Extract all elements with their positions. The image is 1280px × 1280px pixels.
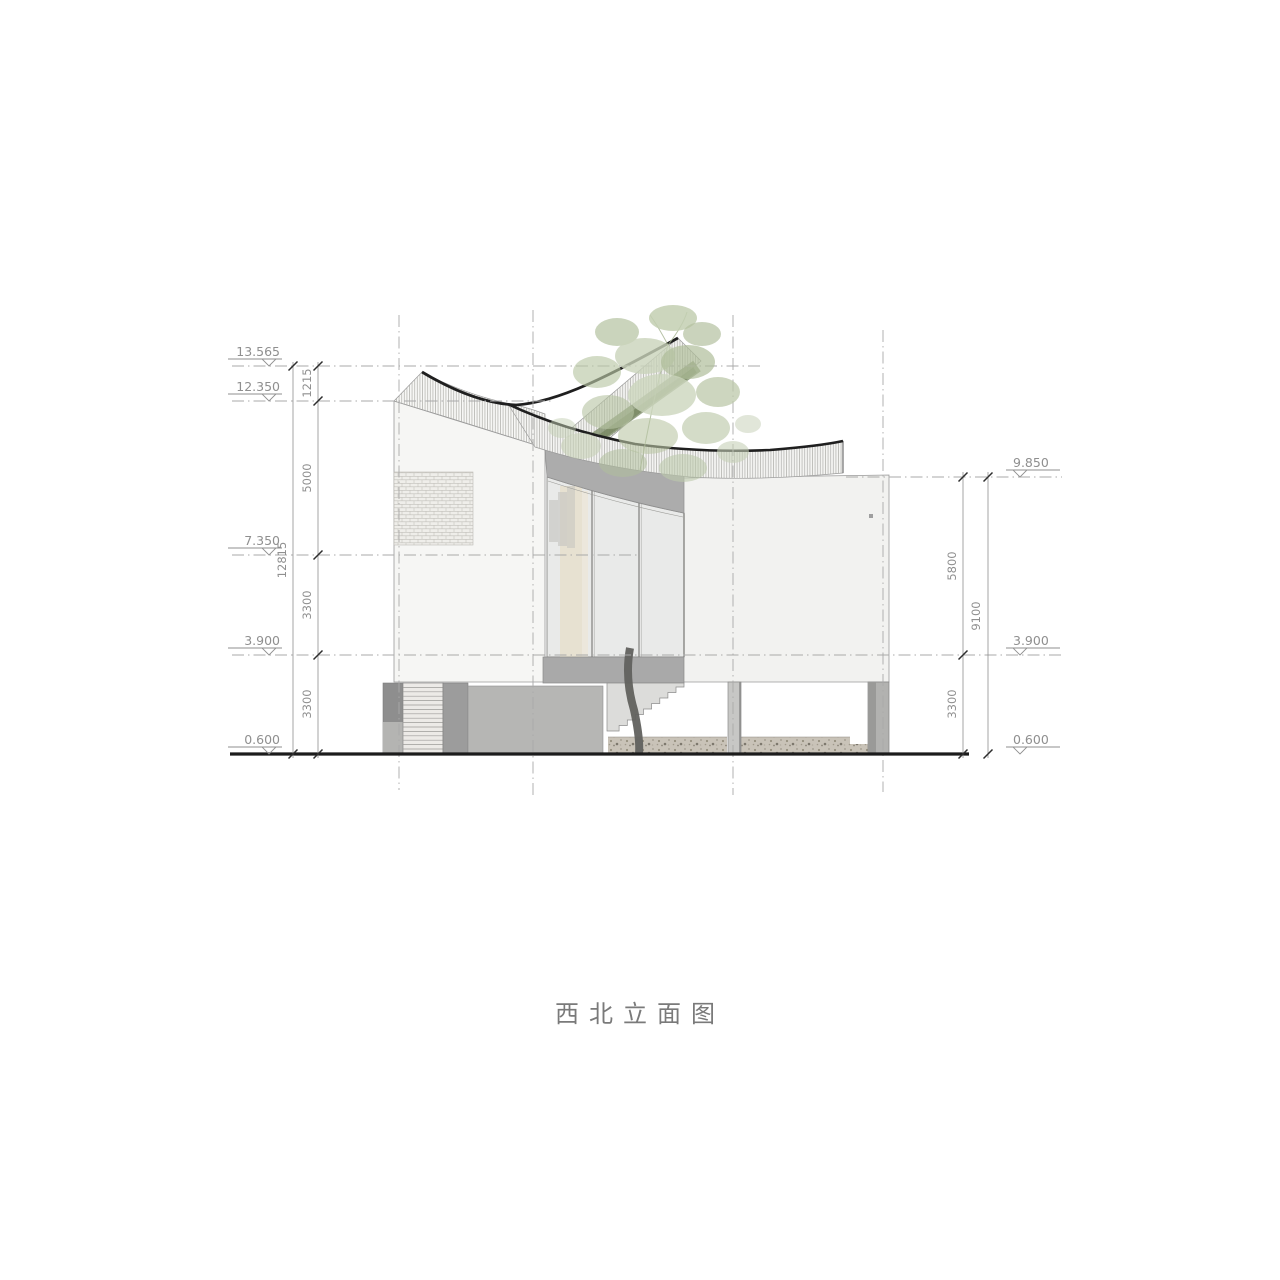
level-value: 12.350 — [236, 379, 280, 394]
level-marker-left: 0.600 — [228, 732, 282, 754]
gravel-strip — [741, 737, 850, 754]
louver-door — [403, 683, 443, 754]
right-wall-volume — [683, 475, 889, 682]
level-marker-left: 12.350 — [228, 379, 282, 401]
level-triangle — [1013, 747, 1027, 754]
level-triangle — [262, 648, 276, 655]
level-value: 0.600 — [244, 732, 280, 747]
ground-wall-slab — [468, 686, 603, 754]
level-value: 0.600 — [1013, 732, 1049, 747]
level-marker-left: 3.900 — [228, 633, 282, 655]
pier-base — [383, 722, 403, 754]
northwest-elevation-svg: 1215 5000 3300 3300 12815 5800 3300 9100… — [0, 0, 1280, 1280]
pier-shadow — [868, 682, 876, 754]
level-triangle — [262, 394, 276, 401]
level-triangle — [262, 359, 276, 366]
level-value: 9.850 — [1013, 455, 1049, 470]
level-value: 13.565 — [236, 344, 280, 359]
interior-silhouette — [558, 492, 567, 546]
staircase — [607, 683, 684, 731]
floor-slab-band — [543, 657, 684, 683]
level-value: 3.900 — [244, 633, 280, 648]
gravel-strip — [608, 737, 727, 754]
brick-texture-patch — [394, 472, 473, 545]
dim-text: 5000 — [300, 463, 314, 492]
drawing-title: 西北立面图 — [0, 994, 1280, 1029]
level-marker-left: 13.565 — [228, 344, 282, 366]
level-marker-right: 9.850 — [1006, 455, 1060, 477]
level-triangle — [262, 548, 276, 555]
elevation-drawing-sheet: 1215 5000 3300 3300 12815 5800 3300 9100… — [0, 0, 1280, 1280]
dim-text: 3300 — [300, 590, 314, 619]
level-triangle — [1013, 470, 1027, 477]
interior-reflection — [582, 491, 588, 657]
level-value: 7.350 — [244, 533, 280, 548]
dim-text: 3300 — [300, 689, 314, 718]
interior-silhouette — [549, 500, 558, 542]
dim-text: 5800 — [945, 551, 959, 580]
wall-vent-detail — [869, 514, 873, 518]
level-value: 3.900 — [1013, 633, 1049, 648]
level-triangle — [1013, 648, 1027, 655]
pilotis-column — [728, 682, 741, 754]
dim-text: 3300 — [945, 689, 959, 718]
level-marker-right: 0.600 — [1006, 732, 1060, 754]
level-marker-left: 7.350 — [228, 533, 282, 555]
pier — [443, 683, 468, 754]
dim-text: 1215 — [300, 368, 314, 397]
dim-text-overall: 9100 — [969, 601, 983, 630]
left-wall — [394, 401, 545, 682]
level-marker-right: 3.900 — [1006, 633, 1060, 655]
interior-silhouette — [567, 486, 575, 548]
